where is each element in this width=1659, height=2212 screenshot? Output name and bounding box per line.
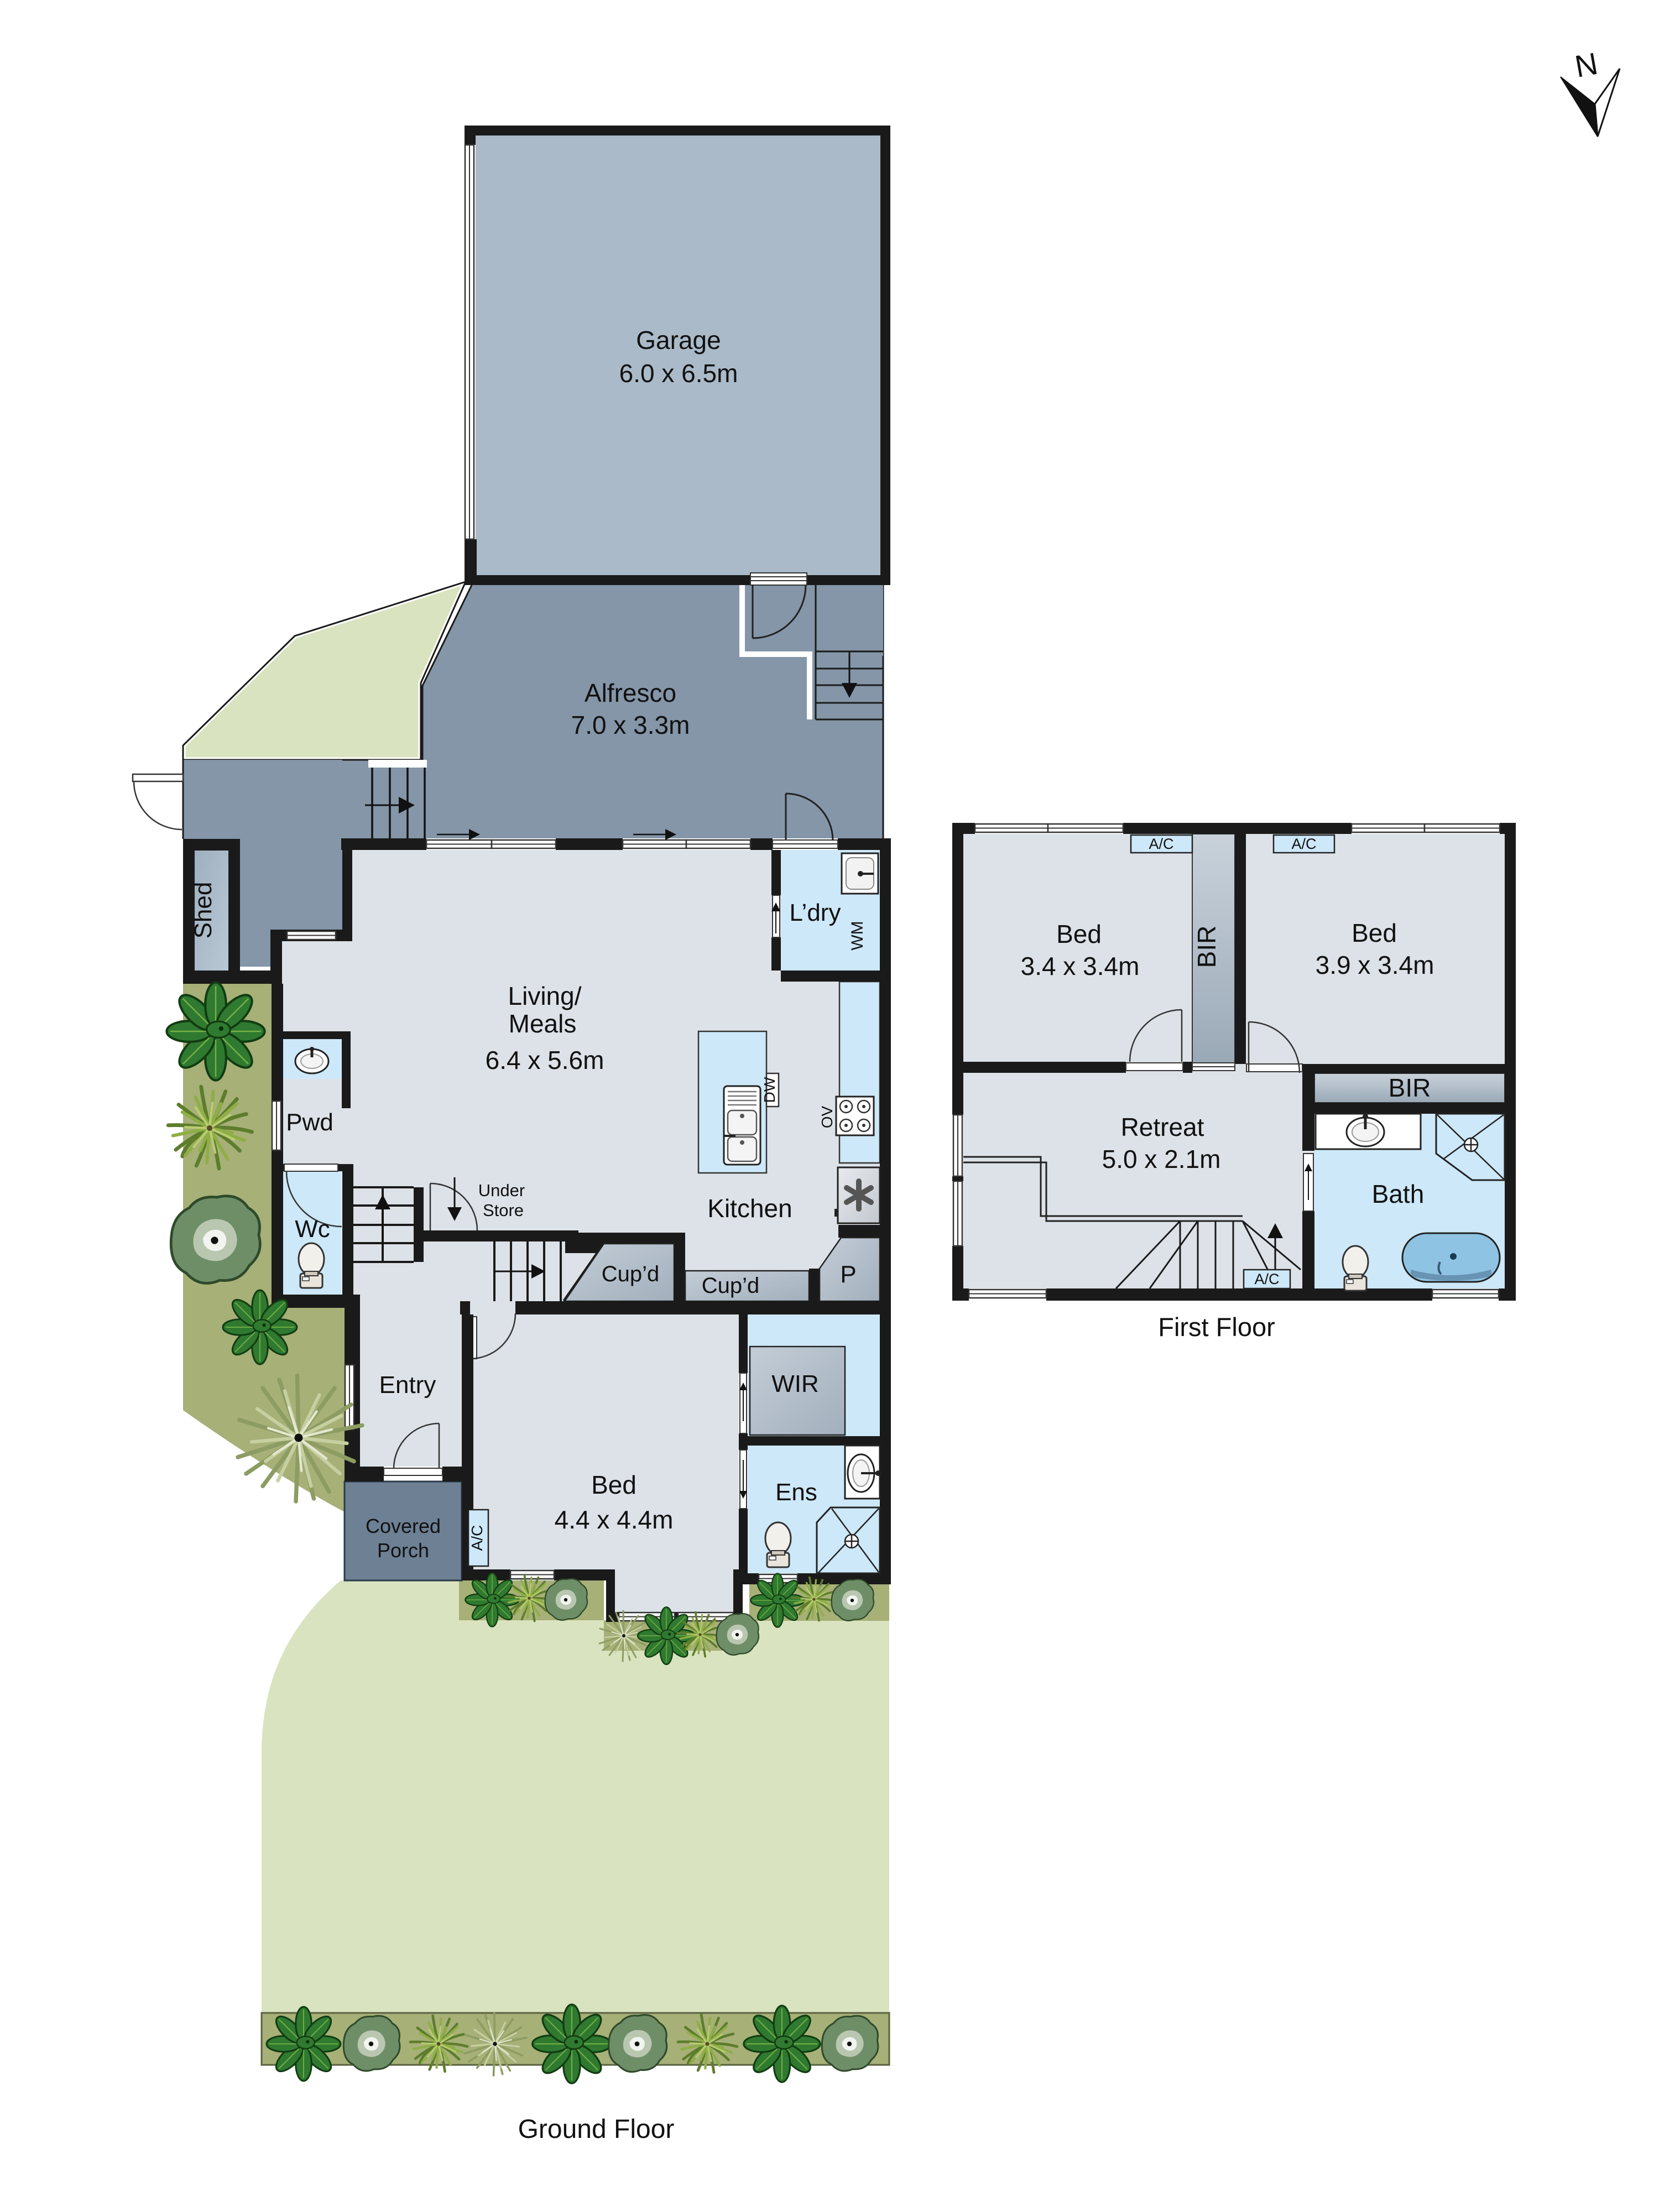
svg-text:Garage: Garage: [636, 326, 721, 354]
svg-text:7.0 x 3.3m: 7.0 x 3.3m: [571, 711, 690, 739]
svg-text:Living/: Living/: [508, 982, 582, 1010]
svg-text:Bed: Bed: [1056, 920, 1102, 948]
svg-text:WM: WM: [848, 921, 867, 950]
svg-text:Covered: Covered: [366, 1515, 441, 1537]
svg-text:3.9 x 3.4m: 3.9 x 3.4m: [1316, 951, 1434, 979]
svg-text:OV: OV: [818, 1105, 836, 1128]
svg-text:Store: Store: [483, 1201, 524, 1220]
svg-text:L’dry: L’dry: [790, 899, 841, 926]
svg-text:5.0 x 2.1m: 5.0 x 2.1m: [1102, 1145, 1221, 1173]
svg-text:First Floor: First Floor: [1158, 1312, 1275, 1342]
svg-text:Entry: Entry: [379, 1371, 436, 1399]
svg-text:A/C: A/C: [1149, 836, 1173, 852]
svg-text:A/C: A/C: [1254, 1271, 1279, 1287]
svg-text:DW: DW: [761, 1077, 778, 1103]
svg-text:Meals: Meals: [509, 1009, 577, 1038]
svg-text:Retreat: Retreat: [1121, 1113, 1204, 1141]
svg-text:Cup’d: Cup’d: [602, 1262, 660, 1286]
svg-text:BIR: BIR: [1192, 926, 1221, 968]
svg-text:Shed: Shed: [190, 882, 217, 939]
svg-text:Bed: Bed: [1352, 919, 1397, 947]
svg-text:Bath: Bath: [1372, 1180, 1425, 1208]
svg-text:Ground Floor: Ground Floor: [518, 2115, 675, 2144]
svg-text:Wc: Wc: [295, 1215, 330, 1243]
svg-text:Under: Under: [478, 1181, 525, 1200]
svg-text:4.4 x 4.4m: 4.4 x 4.4m: [555, 1505, 674, 1534]
svg-text:Bed: Bed: [591, 1470, 637, 1499]
svg-text:BIR: BIR: [1389, 1073, 1431, 1102]
svg-text:Porch: Porch: [377, 1539, 429, 1562]
svg-text:WIR: WIR: [771, 1370, 819, 1397]
svg-text:Pwd: Pwd: [286, 1109, 333, 1136]
svg-text:Ens: Ens: [775, 1479, 817, 1506]
svg-text:Kitchen: Kitchen: [707, 1194, 792, 1223]
svg-text:A/C: A/C: [468, 1525, 486, 1551]
svg-text:Cup’d: Cup’d: [702, 1274, 760, 1298]
svg-text:3.4 x 3.4m: 3.4 x 3.4m: [1021, 952, 1140, 980]
svg-text:A/C: A/C: [1291, 836, 1316, 852]
svg-text:P: P: [840, 1261, 856, 1288]
svg-text:Alfresco: Alfresco: [585, 679, 676, 707]
svg-text:6.4 x 5.6m: 6.4 x 5.6m: [486, 1046, 604, 1074]
svg-text:6.0 x 6.5m: 6.0 x 6.5m: [619, 359, 738, 388]
